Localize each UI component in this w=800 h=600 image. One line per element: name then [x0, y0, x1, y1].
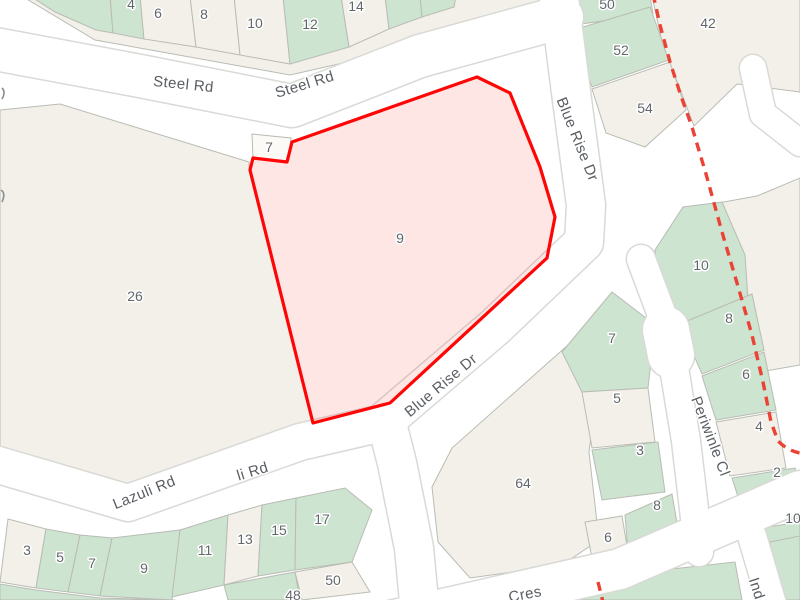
parcel-number-5-19: 5	[613, 390, 621, 406]
parcel-number-6-22: 6	[604, 529, 612, 545]
parcel-number-26-10: 26	[127, 288, 143, 304]
parcel-number-50-6: 50	[599, 0, 615, 12]
parcel-3-west[interactable]	[592, 442, 665, 500]
parcel-number-15-30: 15	[271, 522, 287, 538]
parcel-number-10-17: 10	[785, 510, 800, 526]
parcel-number-8-13: 8	[725, 310, 733, 326]
parcel-top-10[interactable]	[234, 0, 290, 64]
periwinkle-bulb[interactable]	[666, 330, 671, 355]
parcel-number-7-11: 7	[265, 139, 273, 155]
parcel-map[interactable]: 4681012145052544226710864210753866435791…	[0, 0, 800, 600]
parcel-number-7-26: 7	[88, 555, 96, 571]
parcel-number-9-27: 9	[140, 560, 148, 576]
parcel-number-14-5: 14	[348, 0, 364, 14]
parcel-number-4-15: 4	[755, 418, 763, 434]
parcel-number-54-8: 54	[637, 100, 653, 116]
parcel-number-7-18: 7	[608, 330, 616, 346]
parcel-top-8[interactable]	[190, 0, 240, 55]
parcel-number-48-32: 48	[285, 587, 301, 600]
parcel-number-64-23: 64	[515, 475, 531, 491]
parcel-number-2-16: 2	[773, 464, 781, 480]
selected-lot-number: 9	[396, 230, 404, 246]
parcel-number-13-29: 13	[237, 531, 253, 547]
parcel-number-3-20: 3	[636, 442, 644, 458]
parcel-number-10-12: 10	[693, 257, 709, 273]
parcel-number-4-0: 4	[127, 0, 135, 12]
parcel-top-6[interactable]	[140, 0, 196, 47]
parcel-number-42-9: 42	[700, 15, 716, 31]
parcel-number-8-2: 8	[200, 6, 208, 22]
parcel-number-10-3: 10	[247, 15, 263, 31]
parcel-number-50-33: 50	[325, 572, 341, 588]
map-canvas[interactable]: 4681012145052544226710864210753866435791…	[0, 0, 800, 600]
parcel-number-52-7: 52	[613, 42, 629, 58]
parcel-number-17-31: 17	[314, 511, 330, 527]
parcel-number-6-1: 6	[154, 5, 162, 21]
parcel-number-5-25: 5	[56, 549, 64, 565]
parcel-number-3-24: 3	[23, 542, 31, 558]
parcel-number-11-28: 11	[198, 542, 213, 558]
parcel-number-8-21: 8	[653, 497, 661, 513]
parcel-number-6-14: 6	[742, 366, 750, 382]
parcel-number-12-4: 12	[302, 16, 318, 32]
